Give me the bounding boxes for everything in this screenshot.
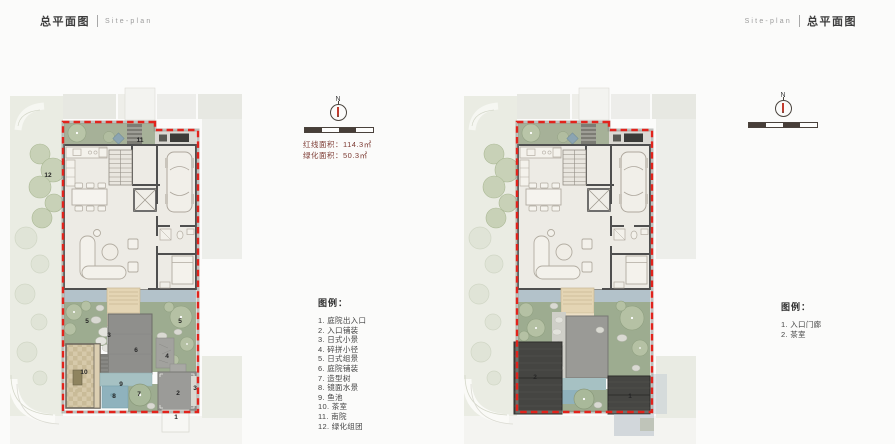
legend-item-list: 1. 庭院出入口2. 入口铺装3. 日式小景4. 碎拼小径5. 日式组景6. 庭… [318, 316, 366, 431]
compass-needle-icon [782, 103, 784, 113]
legend-secondary: 图例： 1. 入口门廊2. 茶室 [781, 300, 821, 339]
legend-item: 10. 茶室 [318, 402, 366, 412]
area-statistics: 红线面积：114.3㎡ 绿化面积：50.3㎡ [303, 139, 372, 161]
compass-dial [775, 100, 792, 117]
scale-bar [748, 122, 818, 128]
plan-a-markers: 12115536410987231 [10, 86, 242, 444]
legend-item: 2. 茶室 [781, 330, 821, 340]
page-title-zh: 总平面图 [40, 13, 90, 29]
compass-tick [783, 97, 784, 100]
header-divider [97, 15, 98, 27]
plan-number-marker: 1 [174, 415, 178, 422]
legend-item: 3. 日式小景 [318, 335, 366, 345]
legend-item: 2. 入口铺装 [318, 326, 366, 336]
legend-item: 1. 庭院出入口 [318, 316, 366, 326]
legend-main: 图例： 1. 庭院出入口2. 入口铺装3. 日式小景4. 碎拼小径5. 日式组景… [318, 296, 366, 431]
compass-tick [338, 101, 339, 104]
site-plan-page: 总平面图 Site-plan Site-plan 总平面图 [0, 0, 895, 444]
north-arrow: N [768, 92, 798, 117]
plan-number-marker: 12 [44, 173, 51, 180]
site-plan-left: 12115536410987231 [10, 86, 242, 444]
green-area: 绿化面积：50.3㎡ [303, 150, 372, 161]
legend-item: 12. 绿化组团 [318, 422, 366, 432]
header-divider [799, 15, 800, 27]
page-header-left: 总平面图 Site-plan [40, 13, 152, 29]
plan-number-marker: 7 [137, 392, 141, 399]
plan-number-marker: 6 [134, 348, 138, 355]
legend-title: 图例： [781, 300, 821, 313]
site-plan-right: 21 [464, 86, 696, 444]
legend-item: 1. 入口门廊 [781, 320, 821, 330]
plan-number-marker: 8 [112, 394, 116, 401]
legend-title: 图例： [318, 296, 366, 309]
plan-number-marker: 1 [628, 394, 632, 401]
scale-bar [304, 127, 374, 133]
plan-number-marker: 4 [165, 354, 169, 361]
page-header-right: Site-plan 总平面图 [745, 13, 857, 29]
legend-item: 9. 鱼池 [318, 393, 366, 403]
page-title-en: Site-plan [745, 18, 792, 25]
legend-item: 8. 镜面水景 [318, 383, 366, 393]
plan-number-marker: 5 [178, 319, 182, 326]
legend-item: 11. 南院 [318, 412, 366, 422]
plan-number-marker: 3 [193, 386, 197, 393]
compass-dial [330, 104, 347, 121]
plan-number-marker: 2 [533, 375, 537, 382]
page-title-en: Site-plan [105, 18, 152, 25]
legend-item-list: 1. 入口门廊2. 茶室 [781, 320, 821, 339]
page-title-zh: 总平面图 [807, 13, 857, 29]
plan-number-marker: 10 [80, 370, 87, 377]
plan-number-marker: 3 [107, 333, 111, 340]
compass-needle-icon [337, 107, 339, 117]
plan-b-markers: 21 [464, 86, 696, 444]
legend-item: 5. 日式组景 [318, 354, 366, 364]
plan-number-marker: 11 [137, 138, 144, 145]
plan-number-marker: 5 [85, 319, 89, 326]
legend-item: 7. 造型树 [318, 374, 366, 384]
plan-number-marker: 9 [119, 382, 123, 389]
north-arrow: N [323, 96, 353, 121]
red-line-area: 红线面积：114.3㎡ [303, 139, 372, 150]
legend-item: 6. 庭院铺装 [318, 364, 366, 374]
plan-number-marker: 2 [176, 391, 180, 398]
legend-item: 4. 碎拼小径 [318, 345, 366, 355]
